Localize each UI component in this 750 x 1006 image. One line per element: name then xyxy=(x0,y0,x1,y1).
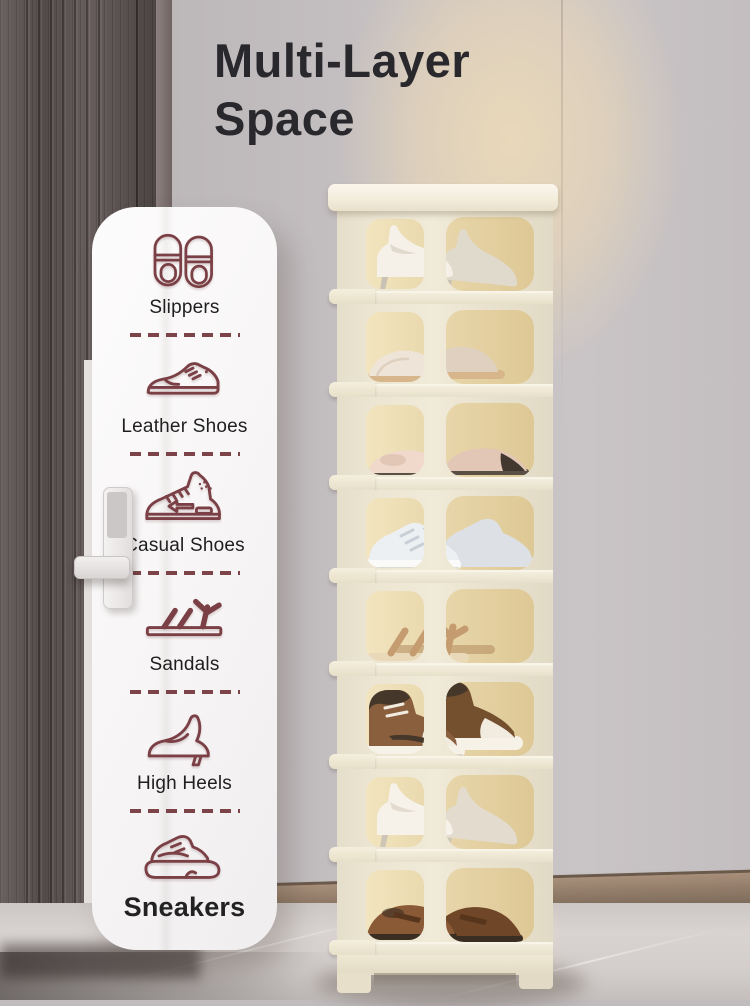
dashed-divider xyxy=(130,571,240,575)
shoe-rack xyxy=(334,184,556,996)
tier-shelf-lip xyxy=(329,661,375,676)
rack-tier-3-cap-toe-ballet-flats xyxy=(337,397,553,494)
tier-shelf-lip xyxy=(329,382,375,397)
sandals-icon xyxy=(142,588,228,648)
category-item-high-heels: High Heels xyxy=(137,707,232,795)
tier-shelf-lip xyxy=(329,940,375,955)
rack-tier-1-white-high-heels xyxy=(337,211,553,308)
tier-shelf-lip xyxy=(329,847,375,862)
category-label: Sandals xyxy=(149,654,219,676)
sneakers-icon xyxy=(141,826,227,886)
leather-shoes-icon xyxy=(141,350,227,410)
category-label: Slippers xyxy=(149,297,219,319)
category-label: High Heels xyxy=(137,773,232,795)
category-item-slippers: Slippers xyxy=(142,231,228,319)
rack-tier-7-white-heels xyxy=(337,769,553,866)
high-heels-icon xyxy=(142,707,228,767)
dashed-divider xyxy=(130,333,240,337)
title-line-2: Space xyxy=(214,90,470,148)
category-label: Sneakers xyxy=(124,892,246,923)
rack-left-foot xyxy=(337,973,371,993)
category-item-leather-shoes: Leather Shoes xyxy=(121,350,247,438)
rack-tier-2-beige-slippers xyxy=(337,304,553,401)
rack-tier-8-brown-loafers xyxy=(337,862,553,959)
dashed-divider xyxy=(130,690,240,694)
category-item-casual-shoes: Casual Shoes xyxy=(124,469,245,557)
door-card-reader xyxy=(107,492,127,538)
rack-tier-5-tan-strappy-sandals xyxy=(337,583,553,680)
rack-top-lid xyxy=(328,184,558,211)
rack-base xyxy=(337,955,553,975)
category-label: Leather Shoes xyxy=(121,416,247,438)
tier-shelf-lip xyxy=(329,289,375,304)
category-item-sandals: Sandals xyxy=(142,588,228,676)
rack-tier-6-brown-high-top-sneakers xyxy=(337,676,553,773)
category-item-sneakers: Sneakers xyxy=(124,826,246,923)
dashed-divider xyxy=(130,452,240,456)
casual-shoes-icon xyxy=(141,469,227,529)
wall-corner-line xyxy=(561,0,563,430)
page-title: Multi-Layer Space xyxy=(214,32,470,148)
door-handle-lever xyxy=(74,556,130,579)
rack-tier-4-white-sneakers xyxy=(337,490,553,587)
tier-shelf-lip xyxy=(329,754,375,769)
tier-shelf-lip xyxy=(329,475,375,490)
slippers-icon xyxy=(142,231,228,291)
title-line-1: Multi-Layer xyxy=(214,32,470,90)
rack-base-shadow xyxy=(374,973,516,987)
rack-right-foot xyxy=(519,973,553,989)
category-label: Casual Shoes xyxy=(124,535,245,557)
dashed-divider xyxy=(130,809,240,813)
tier-shelf-lip xyxy=(329,568,375,583)
